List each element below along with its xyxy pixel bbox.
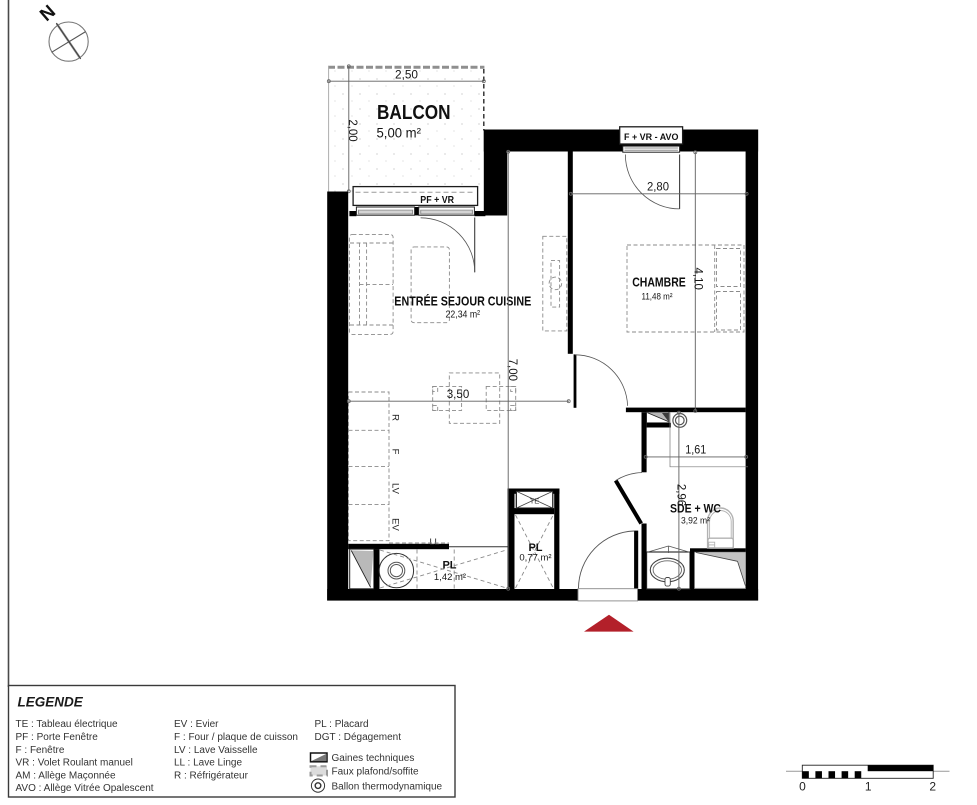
svg-text:VR : Volet Roulant manuel: VR : Volet Roulant manuel (16, 758, 133, 769)
svg-text:22,34 m²: 22,34 m² (446, 310, 481, 321)
svg-text:LL : Lave Linge: LL : Lave Linge (174, 758, 242, 769)
svg-text:ENTRÉE SEJOUR CUISINE: ENTRÉE SEJOUR CUISINE (394, 294, 531, 309)
svg-text:PF : Porte Fenêtre: PF : Porte Fenêtre (16, 732, 99, 743)
svg-text:EV : Evier: EV : Evier (174, 719, 219, 730)
svg-text:SDE + WC: SDE + WC (670, 502, 721, 516)
svg-text:BALCON: BALCON (377, 101, 451, 124)
svg-text:2,80: 2,80 (647, 182, 669, 194)
svg-text:2: 2 (929, 780, 936, 794)
svg-text:LV: LV (390, 483, 401, 495)
svg-text:LV : Lave Vaisselle: LV : Lave Vaisselle (174, 745, 258, 756)
svg-text:AVO : Allège Vitrée Opalesce: AVO : Allège Vitrée Opalescent (16, 783, 154, 794)
svg-text:1: 1 (865, 780, 872, 794)
svg-text:0,77 m²: 0,77 m² (519, 553, 551, 564)
svg-text:Gaines techniques: Gaines techniques (332, 753, 415, 764)
svg-text:F + VR - AVO: F + VR - AVO (624, 132, 679, 142)
svg-text:R : Réfrigérateur: R : Réfrigérateur (174, 770, 249, 781)
svg-text:DGT : Dégagement: DGT : Dégagement (315, 732, 402, 743)
svg-text:AM : Allège Maçonnée: AM : Allège Maçonnée (16, 770, 116, 781)
svg-text:PL : Placard: PL : Placard (315, 719, 369, 730)
svg-text:LEGENDE: LEGENDE (18, 695, 84, 710)
svg-text:EV: EV (390, 518, 401, 531)
svg-text:F : Four / plaque de cuisson: F : Four / plaque de cuisson (174, 732, 298, 743)
svg-text:1,42 m²: 1,42 m² (434, 572, 466, 583)
svg-text:2,50: 2,50 (395, 70, 418, 82)
svg-text:1,61: 1,61 (685, 445, 706, 457)
svg-text:Ballon thermodynamique: Ballon thermodynamique (332, 782, 443, 793)
svg-text:4,10: 4,10 (692, 268, 704, 290)
svg-text:TE : Tableau électrique: TE : Tableau électrique (16, 719, 119, 730)
svg-text:CHAMBRE: CHAMBRE (632, 275, 686, 290)
svg-text:F: F (390, 449, 401, 455)
svg-text:F : Fenêtre: F : Fenêtre (16, 745, 65, 756)
svg-text:3,50: 3,50 (447, 389, 470, 401)
svg-text:R: R (390, 414, 401, 421)
svg-text:PL: PL (442, 560, 456, 572)
svg-text:PF + VR: PF + VR (420, 194, 454, 206)
svg-text:TE: TE (530, 497, 540, 506)
svg-text:5,00 m²: 5,00 m² (377, 126, 422, 141)
svg-text:0: 0 (799, 780, 806, 794)
svg-text:Faux plafond/soffite: Faux plafond/soffite (332, 766, 420, 777)
svg-text:3,92 m²: 3,92 m² (681, 516, 710, 527)
svg-text:2,00: 2,00 (346, 119, 358, 141)
svg-text:7,00: 7,00 (506, 359, 518, 381)
svg-text:LL: LL (430, 537, 440, 547)
svg-text:11,48 m²: 11,48 m² (642, 292, 673, 303)
